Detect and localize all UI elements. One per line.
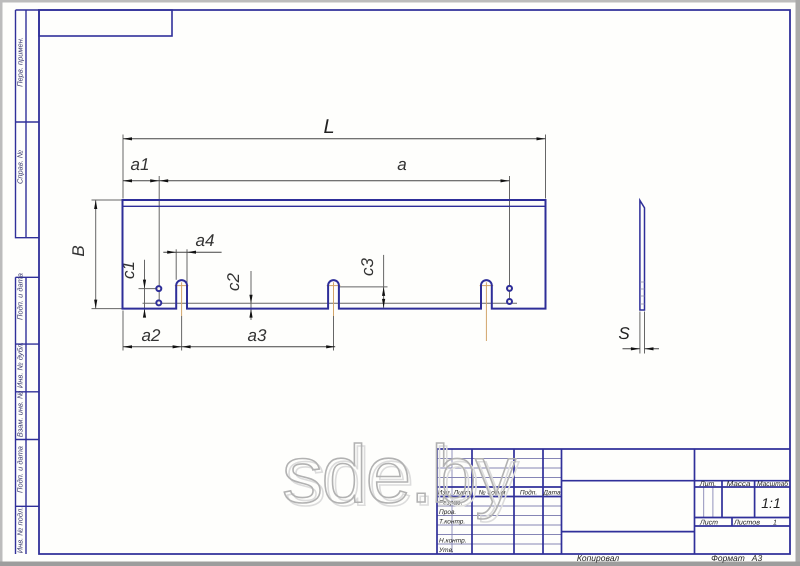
svg-text:Лит.: Лит.	[699, 481, 716, 488]
svg-text:Листов: Листов	[733, 520, 760, 527]
svg-text:Подп.: Подп.	[520, 490, 537, 497]
svg-text:1: 1	[773, 520, 777, 527]
svg-text:a: a	[397, 155, 406, 174]
svg-text:Масштаб: Масштаб	[757, 480, 789, 488]
svg-text:Перв. примен.: Перв. примен.	[15, 37, 24, 87]
svg-text:А3: А3	[751, 553, 763, 563]
svg-text:Формат: Формат	[711, 553, 745, 563]
svg-text:Справ. №: Справ. №	[15, 150, 24, 184]
svg-text:Подп. и дата: Подп. и дата	[15, 273, 24, 320]
svg-text:S: S	[618, 324, 630, 343]
svg-text:1:1: 1:1	[761, 495, 780, 511]
svg-text:Дата: Дата	[542, 490, 561, 497]
svg-text:c2: c2	[224, 272, 243, 291]
svg-text:a1: a1	[131, 155, 150, 174]
svg-text:B: B	[69, 245, 88, 256]
svg-text:a2: a2	[142, 326, 161, 345]
svg-text:Копировал: Копировал	[577, 553, 619, 563]
svg-text:c3: c3	[358, 257, 377, 276]
svg-text:a4: a4	[196, 231, 215, 250]
svg-text:Подп. и дата: Подп. и дата	[15, 446, 24, 493]
svg-text:Утв.: Утв.	[438, 547, 454, 554]
svg-text:a3: a3	[248, 326, 267, 345]
svg-text:Взам. инв. №: Взам. инв. №	[15, 391, 24, 437]
svg-text:Н.контр.: Н.контр.	[439, 538, 467, 545]
svg-text:Масса: Масса	[727, 481, 751, 488]
svg-text:Инв. № дубл.: Инв. № дубл.	[15, 342, 24, 388]
svg-text:L: L	[323, 116, 334, 138]
svg-text:Лист: Лист	[699, 520, 718, 527]
svg-text:Инв. № подл.: Инв. № подл.	[15, 507, 24, 554]
